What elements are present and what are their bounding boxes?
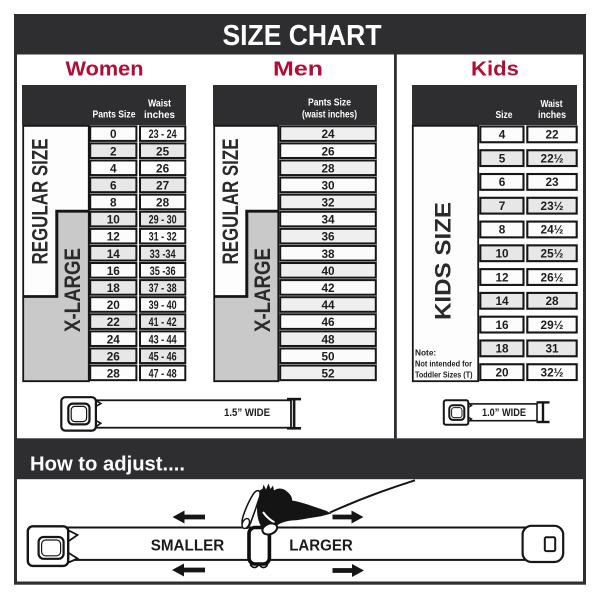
svg-text:8: 8 bbox=[110, 196, 117, 210]
svg-text:Men: Men bbox=[273, 59, 323, 81]
svg-text:32½: 32½ bbox=[541, 365, 564, 379]
svg-text:14: 14 bbox=[107, 247, 121, 261]
svg-text:LARGER: LARGER bbox=[289, 538, 353, 555]
svg-text:27: 27 bbox=[156, 178, 170, 192]
svg-text:16: 16 bbox=[107, 264, 121, 278]
svg-text:29½: 29½ bbox=[541, 318, 564, 332]
svg-text:12: 12 bbox=[495, 270, 509, 284]
svg-text:KIDS SIZE: KIDS SIZE bbox=[431, 202, 456, 320]
svg-text:5: 5 bbox=[499, 151, 506, 165]
svg-text:43 - 44: 43 - 44 bbox=[149, 332, 177, 346]
svg-text:25½: 25½ bbox=[541, 247, 564, 261]
svg-text:46: 46 bbox=[321, 315, 335, 329]
svg-text:Pants Size: Pants Size bbox=[308, 97, 351, 109]
svg-text:(waist inches): (waist inches) bbox=[302, 109, 357, 121]
svg-text:REGULAR SIZE: REGULAR SIZE bbox=[218, 139, 243, 265]
svg-text:24: 24 bbox=[107, 332, 121, 346]
svg-text:50: 50 bbox=[321, 349, 335, 363]
svg-text:REGULAR SIZE: REGULAR SIZE bbox=[28, 139, 53, 265]
svg-text:28: 28 bbox=[156, 196, 170, 210]
svg-text:16: 16 bbox=[495, 318, 509, 332]
svg-text:28: 28 bbox=[321, 161, 335, 175]
svg-text:20: 20 bbox=[107, 298, 121, 312]
svg-text:23 - 24: 23 - 24 bbox=[149, 127, 177, 141]
svg-text:44: 44 bbox=[321, 298, 335, 312]
svg-text:45 - 46: 45 - 46 bbox=[149, 349, 177, 363]
svg-text:34: 34 bbox=[321, 213, 335, 227]
svg-text:25: 25 bbox=[156, 144, 170, 158]
svg-text:31 - 32: 31 - 32 bbox=[149, 230, 177, 244]
svg-text:SIZE CHART: SIZE CHART bbox=[223, 20, 383, 52]
svg-text:30: 30 bbox=[321, 178, 335, 192]
svg-text:10: 10 bbox=[107, 213, 121, 227]
svg-text:23½: 23½ bbox=[541, 199, 564, 213]
svg-text:40: 40 bbox=[321, 264, 335, 278]
svg-text:52: 52 bbox=[321, 366, 335, 380]
svg-text:Note:: Note: bbox=[415, 348, 436, 358]
svg-text:38: 38 bbox=[321, 247, 335, 261]
svg-text:4: 4 bbox=[499, 128, 506, 142]
svg-text:inches: inches bbox=[144, 109, 175, 121]
svg-text:20: 20 bbox=[495, 365, 509, 379]
svg-text:31: 31 bbox=[545, 342, 559, 356]
svg-text:12: 12 bbox=[107, 230, 121, 244]
svg-text:X-LARGE: X-LARGE bbox=[60, 248, 85, 332]
svg-text:28: 28 bbox=[107, 366, 121, 380]
svg-text:8: 8 bbox=[499, 223, 506, 237]
svg-text:6: 6 bbox=[110, 178, 117, 192]
svg-text:2: 2 bbox=[110, 144, 117, 158]
svg-text:29 - 30: 29 - 30 bbox=[149, 213, 177, 227]
svg-text:1.0” WIDE: 1.0” WIDE bbox=[482, 407, 526, 419]
svg-text:Women: Women bbox=[66, 59, 144, 81]
svg-text:37 - 38: 37 - 38 bbox=[149, 281, 177, 295]
svg-text:22½: 22½ bbox=[541, 151, 564, 165]
svg-text:36: 36 bbox=[321, 230, 335, 244]
svg-text:22: 22 bbox=[545, 128, 559, 142]
svg-text:7: 7 bbox=[499, 199, 506, 213]
svg-text:24: 24 bbox=[321, 127, 335, 141]
svg-text:SMALLER: SMALLER bbox=[151, 538, 225, 555]
svg-text:48: 48 bbox=[321, 332, 335, 346]
svg-text:26: 26 bbox=[321, 144, 335, 158]
svg-text:Waist: Waist bbox=[148, 98, 171, 110]
svg-text:X-LARGE: X-LARGE bbox=[250, 248, 275, 332]
svg-text:24½: 24½ bbox=[541, 223, 564, 237]
svg-text:Size: Size bbox=[496, 109, 513, 121]
svg-text:How to adjust....: How to adjust.... bbox=[30, 453, 185, 476]
svg-text:47 - 48: 47 - 48 bbox=[149, 366, 177, 380]
svg-text:inches: inches bbox=[538, 109, 566, 121]
svg-text:23: 23 bbox=[545, 175, 559, 189]
svg-text:18: 18 bbox=[495, 342, 509, 356]
svg-text:22: 22 bbox=[107, 315, 121, 329]
svg-text:28: 28 bbox=[545, 294, 559, 308]
svg-text:26: 26 bbox=[156, 161, 170, 175]
svg-text:32: 32 bbox=[321, 196, 335, 210]
svg-text:10: 10 bbox=[495, 247, 509, 261]
svg-text:26½: 26½ bbox=[541, 270, 564, 284]
svg-text:39 - 40: 39 - 40 bbox=[149, 298, 177, 312]
svg-text:1.5” WIDE: 1.5” WIDE bbox=[224, 407, 270, 419]
svg-text:Kids: Kids bbox=[471, 59, 519, 81]
svg-text:6: 6 bbox=[499, 175, 506, 189]
svg-text:18: 18 bbox=[107, 281, 121, 295]
svg-text:0: 0 bbox=[110, 127, 117, 141]
svg-text:26: 26 bbox=[107, 349, 121, 363]
svg-text:4: 4 bbox=[110, 161, 117, 175]
svg-text:Not intended for: Not intended for bbox=[415, 359, 473, 369]
svg-text:42: 42 bbox=[321, 281, 335, 295]
svg-text:Pants Size: Pants Size bbox=[93, 109, 136, 121]
svg-text:41 - 42: 41 - 42 bbox=[149, 315, 177, 329]
svg-text:Toddler Sizes (T): Toddler Sizes (T) bbox=[415, 370, 473, 380]
svg-text:14: 14 bbox=[495, 294, 509, 308]
svg-text:33 -34: 33 -34 bbox=[150, 247, 176, 261]
svg-text:35 -36: 35 -36 bbox=[150, 264, 176, 278]
